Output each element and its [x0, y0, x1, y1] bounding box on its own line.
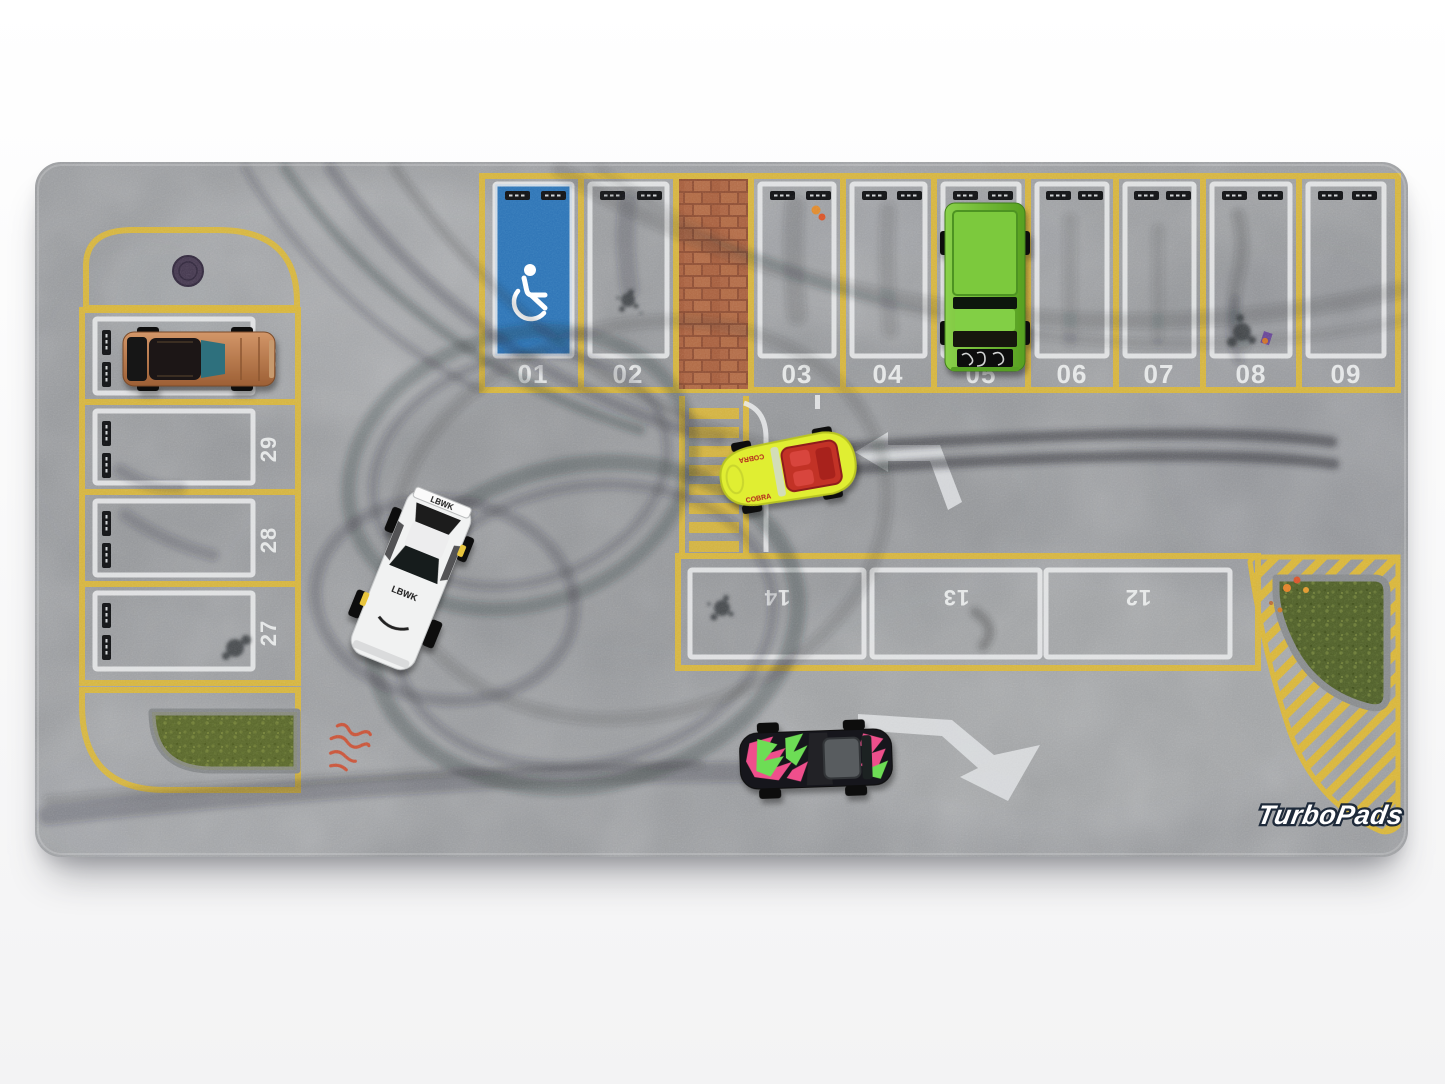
green-pickup-truck: [940, 203, 1030, 371]
mat-artwork: 01 02 03 04 05 06 07 08 09: [35, 162, 1408, 857]
product-photo: 01 02 03 04 05 06 07 08 09: [0, 0, 1445, 1084]
copper-muscle-car: [123, 327, 275, 391]
parking-lot-mat: 01 02 03 04 05 06 07 08 09: [35, 162, 1408, 857]
print-grain: [35, 162, 1408, 857]
svg-text:TurboPads: TurboPads: [1255, 799, 1405, 830]
brand-logo: TurboPads: [1255, 799, 1405, 830]
